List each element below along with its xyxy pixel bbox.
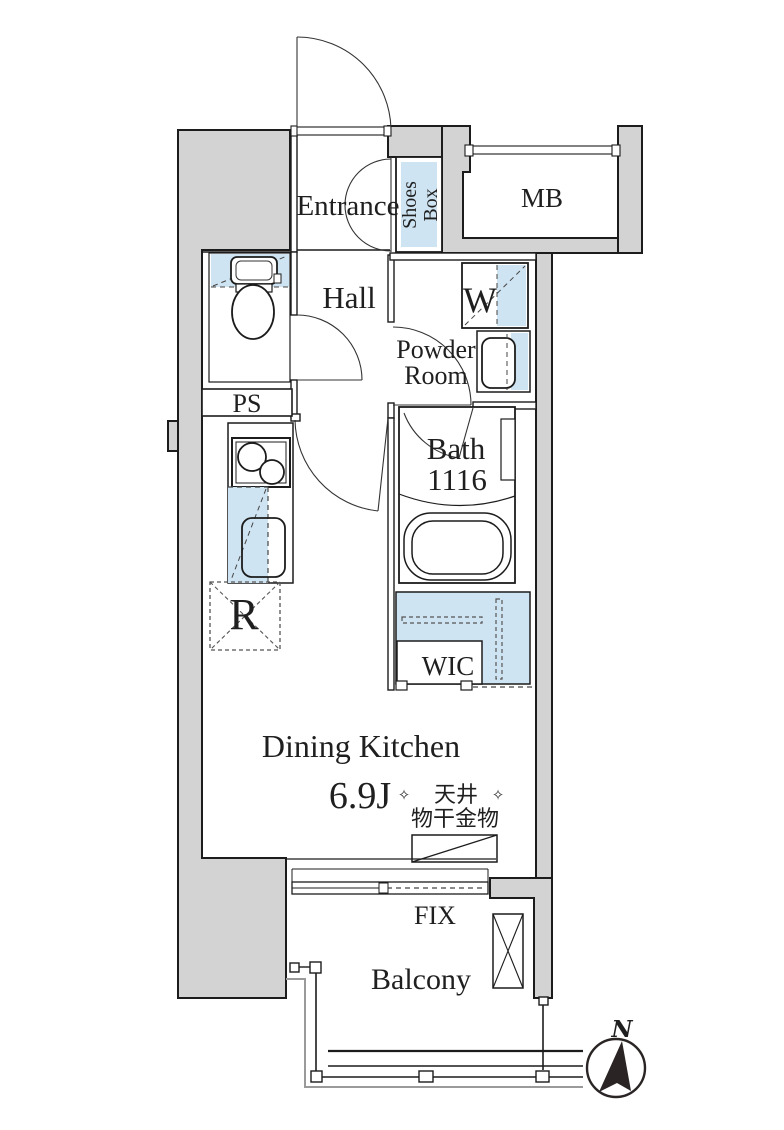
hall-label: Hall xyxy=(322,280,375,315)
stove xyxy=(232,438,290,487)
washer-label: W xyxy=(463,280,497,320)
ac-unit-space xyxy=(493,914,523,988)
fix-label: FIX xyxy=(414,901,456,930)
fix-window xyxy=(286,859,496,894)
balcony-label: Balcony xyxy=(371,963,471,996)
ornament-left: ✧ xyxy=(398,786,411,804)
dining-kitchen-label: Dining Kitchen xyxy=(262,728,460,764)
entrance-door-sill xyxy=(291,126,391,136)
left-wall-notch xyxy=(168,421,178,451)
ceiling-note-2: 物干金物 xyxy=(411,806,499,831)
entrance-label: Entrance xyxy=(296,190,399,222)
compass-north-label: N xyxy=(610,1016,633,1043)
powder-room-label-1: Powder xyxy=(396,335,476,364)
right-wall xyxy=(536,253,552,878)
top-wall-right-of-door xyxy=(388,126,442,157)
svg-text:Box: Box xyxy=(420,188,442,221)
ornament-right: ✧ xyxy=(492,786,505,804)
dk-size-label: 6.9J xyxy=(329,775,391,817)
kitchen-counter xyxy=(228,423,293,583)
ceiling-note-1: 天井 xyxy=(434,782,478,807)
meter-box-door xyxy=(465,145,620,156)
powder-room-label-2: Room xyxy=(404,361,468,390)
wic-label: WIC xyxy=(422,651,474,681)
floor-plan-drawing: N Entrance Shoes Box MB Hall W Powder Ro… xyxy=(0,0,784,1130)
floor-plan-page: N Entrance Shoes Box MB Hall W Powder Ro… xyxy=(0,0,784,1130)
compass: N xyxy=(587,1016,645,1097)
toilet-room xyxy=(209,253,290,382)
bathroom-sink xyxy=(477,331,530,392)
ceiling-laundry-symbol xyxy=(412,835,497,862)
ps-label: PS xyxy=(233,389,262,418)
bath-size-label: 1116 xyxy=(427,462,487,497)
bath-label: Bath xyxy=(427,431,486,466)
mb-label: MB xyxy=(521,183,563,213)
fridge-label: R xyxy=(229,590,259,639)
svg-text:Shoes: Shoes xyxy=(399,181,421,229)
mb-right-wall xyxy=(618,126,642,253)
